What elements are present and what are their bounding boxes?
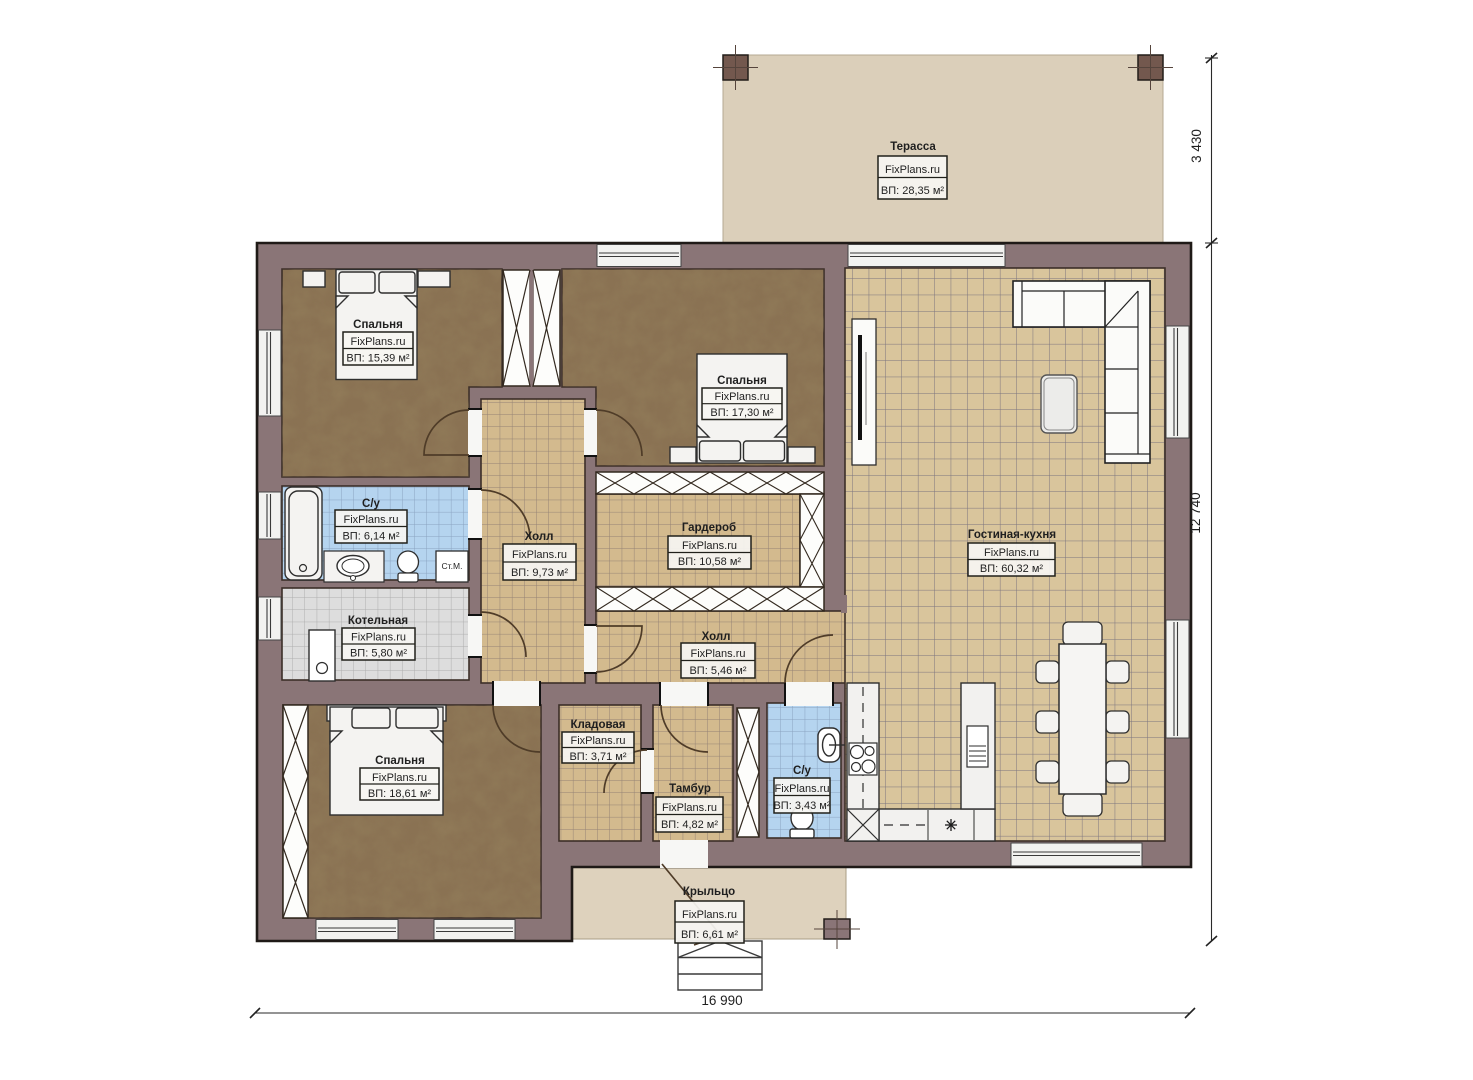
svg-text:ВП: 3,71 м²: ВП: 3,71 м² [569,751,626,763]
svg-text:ВП: 60,32 м²: ВП: 60,32 м² [980,563,1044,575]
svg-text:ВП: 6,14 м²: ВП: 6,14 м² [342,531,399,543]
svg-text:ВП: 5,80 м²: ВП: 5,80 м² [350,648,407,660]
svg-text:FixPlans.ru: FixPlans.ru [372,772,427,784]
svg-text:Холл: Холл [525,531,554,543]
svg-text:FixPlans.ru: FixPlans.ru [343,514,398,526]
svg-text:Гостиная-кухня: Гостиная-кухня [968,529,1056,541]
svg-text:ВП: 5,46 м²: ВП: 5,46 м² [689,665,746,677]
svg-text:Гардероб: Гардероб [682,522,736,534]
svg-text:FixPlans.ru: FixPlans.ru [690,648,745,660]
svg-text:Ст.М.: Ст.М. [442,561,463,571]
svg-text:ВП: 9,73 м²: ВП: 9,73 м² [511,567,568,579]
svg-text:FixPlans.ru: FixPlans.ru [512,549,567,561]
svg-text:ВП: 4,82 м²: ВП: 4,82 м² [661,819,718,831]
svg-text:Тамбур: Тамбур [669,783,711,795]
svg-text:FixPlans.ru: FixPlans.ru [774,783,829,795]
svg-text:Терасса: Терасса [890,141,936,153]
svg-text:ВП: 6,61 м²: ВП: 6,61 м² [681,929,738,941]
svg-text:FixPlans.ru: FixPlans.ru [350,336,405,348]
svg-text:12 740: 12 740 [1188,492,1203,533]
svg-text:С/у: С/у [362,498,381,510]
svg-text:FixPlans.ru: FixPlans.ru [662,802,717,814]
svg-text:ВП: 3,43 м²: ВП: 3,43 м² [773,800,830,812]
svg-text:FixPlans.ru: FixPlans.ru [885,164,940,176]
svg-text:Крыльцо: Крыльцо [683,886,735,898]
svg-text:ВП: 18,61 м²: ВП: 18,61 м² [368,788,432,800]
svg-text:ВП: 15,39 м²: ВП: 15,39 м² [346,353,410,365]
svg-text:FixPlans.ru: FixPlans.ru [714,391,769,403]
svg-text:FixPlans.ru: FixPlans.ru [351,632,406,644]
svg-text:С/у: С/у [793,765,812,777]
svg-text:Спальня: Спальня [375,755,425,767]
svg-text:FixPlans.ru: FixPlans.ru [570,735,625,747]
svg-text:FixPlans.ru: FixPlans.ru [682,909,737,921]
svg-text:Спальня: Спальня [717,375,767,387]
svg-text:Кладовая: Кладовая [570,719,625,731]
svg-text:ВП: 10,58 м²: ВП: 10,58 м² [678,556,742,568]
svg-text:FixPlans.ru: FixPlans.ru [682,540,737,552]
svg-text:3 430: 3 430 [1189,129,1204,163]
svg-text:Холл: Холл [702,631,731,643]
svg-text:16 990: 16 990 [701,993,742,1008]
svg-text:FixPlans.ru: FixPlans.ru [984,547,1039,559]
svg-text:ВП: 28,35 м²: ВП: 28,35 м² [881,185,945,197]
svg-text:ВП: 17,30 м²: ВП: 17,30 м² [710,407,774,419]
svg-text:Спальня: Спальня [353,319,403,331]
svg-text:Котельная: Котельная [348,615,408,627]
